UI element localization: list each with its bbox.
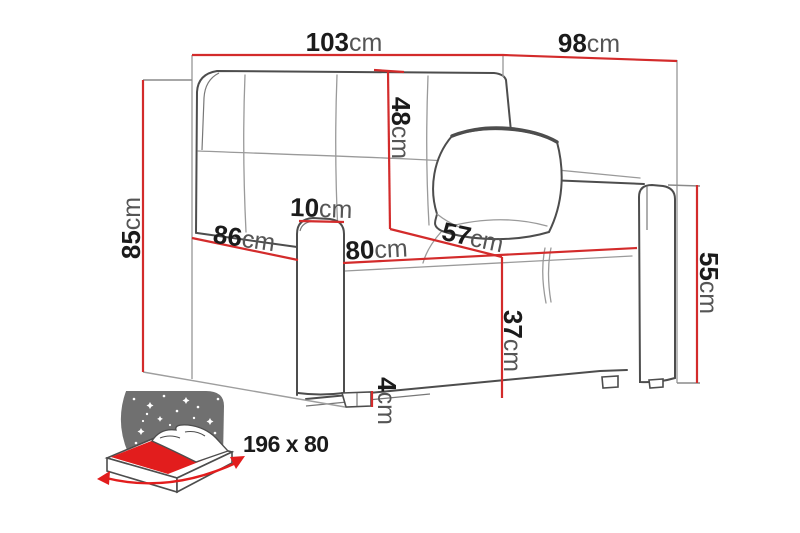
product-dimension-diagram: 103cm 98cm 85cm 48cm 10cm 86cm 80cm 57cm… bbox=[0, 0, 800, 533]
label-overall-height: 85cm bbox=[116, 197, 146, 259]
armrest-right-fill bbox=[639, 185, 675, 382]
length-arrow-head-left bbox=[97, 471, 110, 485]
cushion-divider-right-2 bbox=[549, 248, 552, 302]
label-seat-width: 80cm bbox=[345, 232, 409, 265]
label-backrest-height: 48cm bbox=[386, 97, 416, 159]
sofa-bed-night-icon: 196 x 80 bbox=[97, 391, 329, 492]
cushion-divider-right bbox=[543, 248, 546, 303]
armrest-height-tick-top bbox=[668, 185, 700, 186]
label-armrest-height: 55cm bbox=[694, 252, 724, 314]
armrest-left-fill bbox=[297, 218, 344, 395]
right-leg bbox=[649, 379, 663, 388]
label-leg-height: 4cm bbox=[372, 377, 402, 425]
sleeping-area-label: 196 x 80 bbox=[243, 431, 329, 457]
label-seat-height: 37cm bbox=[498, 310, 528, 372]
middle-leg bbox=[602, 376, 618, 388]
label-armrest-width: 10cm bbox=[290, 192, 353, 224]
label-overall-width: 103cm bbox=[306, 27, 383, 57]
label-overall-depth: 98cm bbox=[558, 28, 620, 58]
diagram-svg: 103cm 98cm 85cm 48cm 10cm 86cm 80cm 57cm… bbox=[0, 0, 800, 533]
